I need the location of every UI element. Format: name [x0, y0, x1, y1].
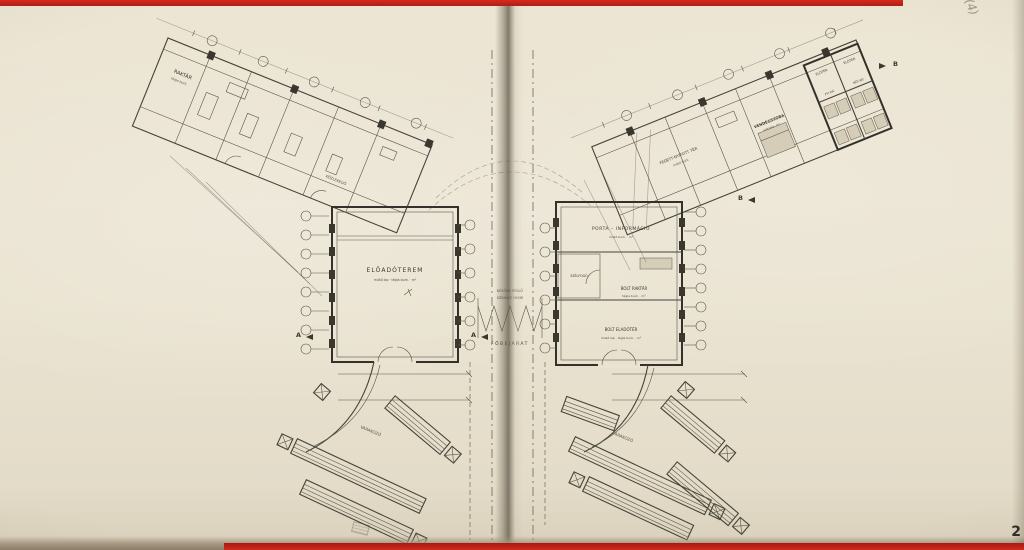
- red-edge-bottom: [224, 543, 1024, 550]
- left-axis-bubbles: [301, 211, 475, 354]
- bolt-raktar-label: BOLT RAKTÁR: [621, 286, 648, 291]
- eloter1-label: ELŐTÉR: [815, 67, 829, 77]
- ffi-wc-label: FFI WC: [824, 89, 835, 97]
- page-right-curl: [1012, 0, 1024, 550]
- left-wing: RAKTÁR tégla burk. KÖZLEKEDŐ: [116, 14, 455, 240]
- section-marker-a2: A: [471, 331, 476, 339]
- right-waiting-label: VÁRAKOZÓ: [612, 430, 634, 443]
- porta-label: PORTA – INFORMÁCIÓ: [592, 225, 650, 232]
- page-number: 2: [1011, 524, 1021, 540]
- section-marker-b1: B: [738, 194, 743, 202]
- section-marker-b2: B: [893, 60, 898, 68]
- right-section-markers: B B: [738, 60, 898, 203]
- noi-wc-label: NŐI WC: [852, 76, 865, 85]
- lecture-hall-label: ELŐADÓTEREM: [367, 267, 424, 274]
- left-section-markers: A A: [296, 331, 488, 340]
- right-hall: PORTA – INFORMÁCIÓ műkő burk. · m² SZÉLF…: [553, 202, 685, 368]
- left-hall: ELŐADÓTEREM műkő lap · tégla burk. · m²: [329, 207, 461, 365]
- bolt-eladoter-sub: műkő lap · tégla burk. · m²: [601, 336, 642, 340]
- lecture-hall-sub: műkő lap · tégla burk. · m²: [374, 278, 417, 282]
- left-corridor-label: KÖZLEKEDŐ: [325, 173, 347, 186]
- bolt-eladoter-label: BOLT ELADÓTÉR: [605, 327, 638, 332]
- right-page-plan: FEDETT-NYITOTT TÉR műkő burk. VENDÉGSZOB…: [533, 15, 905, 545]
- left-page-plan: RAKTÁR tégla burk. KÖZLEKEDŐ ELŐADÓTEREM…: [116, 14, 492, 550]
- red-edge-top: [0, 0, 903, 6]
- book-gutter-shadow: [495, 0, 523, 550]
- szelfogo-label: SZÉLFOGÓ: [570, 273, 588, 278]
- section-marker-a1: A: [296, 331, 301, 339]
- left-waiting-label: VÁRAKOZÓ: [360, 424, 382, 437]
- bolt-raktar-sub: tégla burk. · m²: [622, 294, 646, 298]
- eloter2-label: ELŐTÉR: [842, 56, 856, 66]
